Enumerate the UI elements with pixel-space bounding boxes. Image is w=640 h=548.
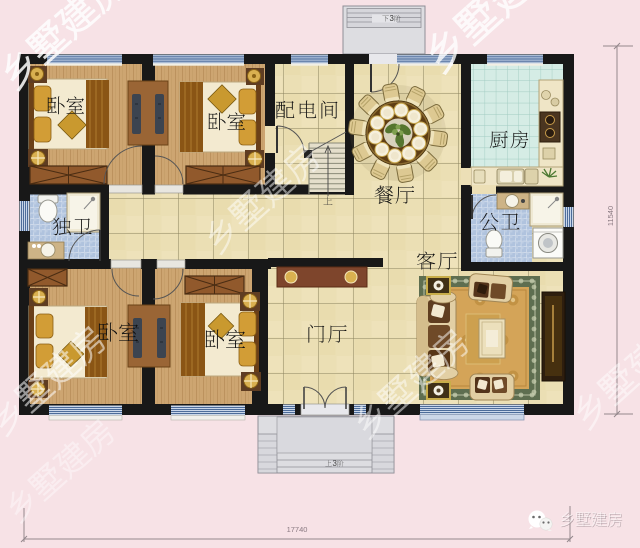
- svg-text:11540: 11540: [606, 206, 615, 226]
- svg-text:17740: 17740: [287, 525, 308, 534]
- svg-text:3: 3: [390, 14, 395, 23]
- svg-text:3: 3: [333, 459, 338, 468]
